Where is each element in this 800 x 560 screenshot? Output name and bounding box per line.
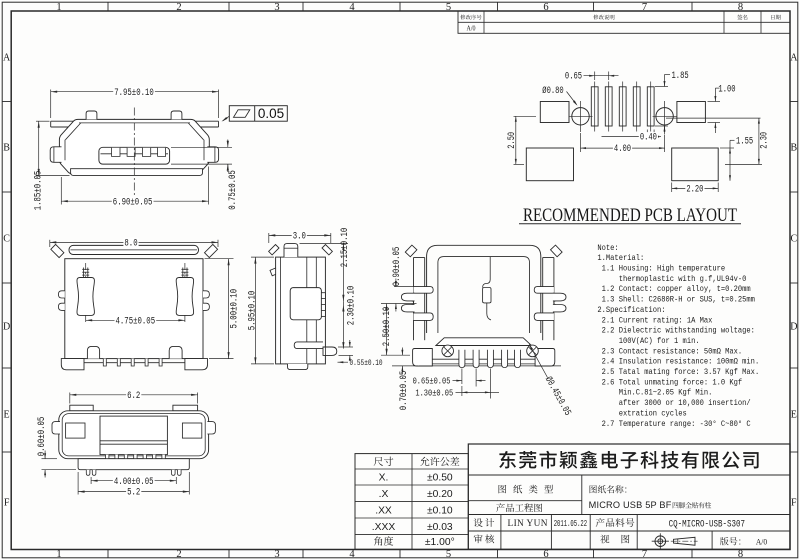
svg-text:1.85: 1.85	[672, 70, 689, 81]
svg-text:C: C	[790, 234, 797, 245]
svg-text:X.: X.	[379, 473, 389, 484]
svg-text:2.Specification:: 2.Specification:	[597, 307, 665, 315]
svg-text:.XX: .XX	[375, 505, 392, 516]
svg-text:0.55±0.10: 0.55±0.10	[350, 359, 383, 368]
svg-text:2.5 Tatal mating force: 3.57 K: 2.5 Tatal mating force: 3.57 Kgf Max.	[597, 369, 759, 377]
svg-text:after 3000 or 10,000 insertion: after 3000 or 10,000 insertion/	[597, 400, 751, 408]
svg-text:±0.03: ±0.03	[427, 522, 453, 533]
svg-text:100V(AC) for 1 min.: 100V(AC) for 1 min.	[597, 338, 699, 346]
svg-text:8: 8	[738, 2, 743, 13]
svg-text:0.40: 0.40	[640, 132, 657, 143]
svg-text:Note:: Note:	[597, 245, 618, 253]
svg-text:7.95±0.10: 7.95±0.10	[114, 87, 154, 98]
svg-text:2.15±0.10: 2.15±0.10	[339, 228, 350, 268]
svg-text:F: F	[4, 498, 10, 509]
svg-text:0.75±0.05: 0.75±0.05	[227, 170, 238, 210]
svg-text:B: B	[3, 143, 10, 154]
svg-text:RECOMMENDED PCB LAYOUT: RECOMMENDED PCB LAYOUT	[523, 204, 738, 225]
svg-text:5: 5	[446, 549, 451, 560]
svg-text:.X: .X	[379, 489, 389, 500]
svg-text:7: 7	[642, 549, 647, 560]
svg-text:1.00: 1.00	[718, 83, 735, 94]
svg-text:2.30±0.10: 2.30±0.10	[345, 286, 356, 326]
svg-text:1.3 Shell: C2680R-H or SUS, t=: 1.3 Shell: C2680R-H or SUS, t=0.25mm	[597, 296, 755, 304]
svg-text:D: D	[790, 322, 797, 333]
svg-text:4.00: 4.00	[614, 143, 631, 154]
svg-text:2.4 Insulation resistance: 100: 2.4 Insulation resistance: 100mΩ min.	[597, 358, 759, 366]
svg-text:1: 1	[56, 549, 61, 560]
svg-text:1.1 Housing: High temperature: 1.1 Housing: High temperature	[597, 265, 725, 273]
svg-text:0.65: 0.65	[565, 71, 582, 82]
svg-text:7: 7	[642, 2, 647, 13]
svg-text:±0.50: ±0.50	[427, 473, 453, 484]
svg-text:2.2 Dielectric withstanding wo: 2.2 Dielectric withstanding woltage:	[597, 327, 755, 335]
svg-text:5.00±0.10: 5.00±0.10	[228, 289, 239, 329]
svg-text:B: B	[790, 143, 797, 154]
svg-text:E: E	[791, 410, 797, 421]
svg-text:E: E	[4, 410, 10, 421]
svg-text:1.30±0.05: 1.30±0.05	[415, 387, 453, 398]
svg-text:3: 3	[274, 549, 279, 560]
svg-text::: :	[739, 537, 742, 548]
svg-text:F: F	[791, 498, 797, 509]
svg-text:±1.00°: ±1.00°	[425, 537, 455, 548]
svg-text:D: D	[3, 322, 10, 333]
svg-text:4.00±0.05: 4.00±0.05	[114, 476, 154, 487]
svg-text:A/0: A/0	[467, 25, 477, 33]
svg-text:Min.C.81~2.05 Kgf Min.: Min.C.81~2.05 Kgf Min.	[597, 389, 712, 397]
svg-text:1.55: 1.55	[736, 136, 753, 147]
svg-text:0.90±0.05: 0.90±0.05	[391, 247, 402, 287]
svg-text:2.30: 2.30	[759, 132, 770, 149]
svg-text:.XXX: .XXX	[372, 522, 396, 533]
svg-text:1.85±0.05: 1.85±0.05	[32, 171, 43, 211]
svg-text:2.20: 2.20	[686, 184, 703, 195]
svg-text:A/0: A/0	[756, 537, 767, 547]
svg-text:LIN YUN: LIN YUN	[507, 519, 547, 529]
svg-text:6.2: 6.2	[127, 390, 140, 401]
svg-text:2.6 Total unmating force: 1.0: 2.6 Total unmating force: 1.0 Kgf	[597, 379, 742, 387]
svg-text:4.75±0.05: 4.75±0.05	[115, 315, 155, 326]
svg-text:2.7 Temperature range: -30° C~: 2.7 Temperature range: -30° C~80° C	[597, 419, 751, 428]
svg-text:C: C	[3, 234, 10, 245]
svg-text:6: 6	[543, 2, 548, 13]
svg-text:CQ-MICRO-USB-S307: CQ-MICRO-USB-S307	[669, 518, 745, 529]
svg-text:Ø0.80: Ø0.80	[542, 85, 563, 96]
svg-text:4: 4	[349, 2, 355, 13]
svg-text:0.70±0.05: 0.70±0.05	[398, 371, 409, 411]
svg-text:2: 2	[176, 549, 181, 560]
svg-text:4: 4	[349, 549, 355, 560]
svg-text:5.95±0.10: 5.95±0.10	[246, 291, 257, 331]
svg-text:3: 3	[274, 2, 279, 13]
svg-text:±0.20: ±0.20	[427, 489, 453, 500]
svg-text:±0.10: ±0.10	[427, 505, 453, 516]
svg-text:extration cycles: extration cycles	[597, 410, 686, 418]
svg-text:0.65±0.05: 0.65±0.05	[413, 376, 451, 387]
svg-text:2011.05.22: 2011.05.22	[554, 520, 587, 530]
svg-text:6: 6	[543, 549, 548, 560]
svg-text:2.50: 2.50	[506, 132, 517, 149]
svg-text:MICRO USB 5P BF: MICRO USB 5P BF	[589, 500, 672, 510]
svg-text:2.3 Contact resistance: 50mΩ M: 2.3 Contact resistance: 50mΩ Max.	[597, 348, 742, 356]
svg-text:A: A	[790, 53, 798, 64]
svg-text:8: 8	[738, 549, 743, 560]
svg-text::: :	[625, 485, 628, 496]
svg-text:0.60±0.05: 0.60±0.05	[36, 417, 47, 457]
svg-text:5.2: 5.2	[127, 487, 140, 498]
svg-text:5: 5	[446, 2, 451, 13]
svg-text:A: A	[3, 53, 11, 64]
svg-text:0.05: 0.05	[258, 106, 284, 121]
svg-text:1.2 Contact: copper alloy, t=0: 1.2 Contact: copper alloy, t=0.20mm	[597, 286, 751, 294]
svg-text:thermoplastic with g.f,UL94v-0: thermoplastic with g.f,UL94v-0	[597, 276, 747, 284]
svg-text:2.1 Current rating: 1A Max: 2.1 Current rating: 1A Max	[597, 317, 712, 325]
svg-text:3.0: 3.0	[293, 230, 306, 241]
svg-text:1.Material:: 1.Material:	[597, 255, 644, 263]
svg-text:2: 2	[176, 2, 181, 13]
svg-text:8.0: 8.0	[124, 237, 137, 248]
svg-text:2.50±0.10: 2.50±0.10	[381, 307, 392, 347]
svg-text:1: 1	[56, 2, 61, 13]
svg-text:6.90±0.05: 6.90±0.05	[113, 196, 153, 207]
